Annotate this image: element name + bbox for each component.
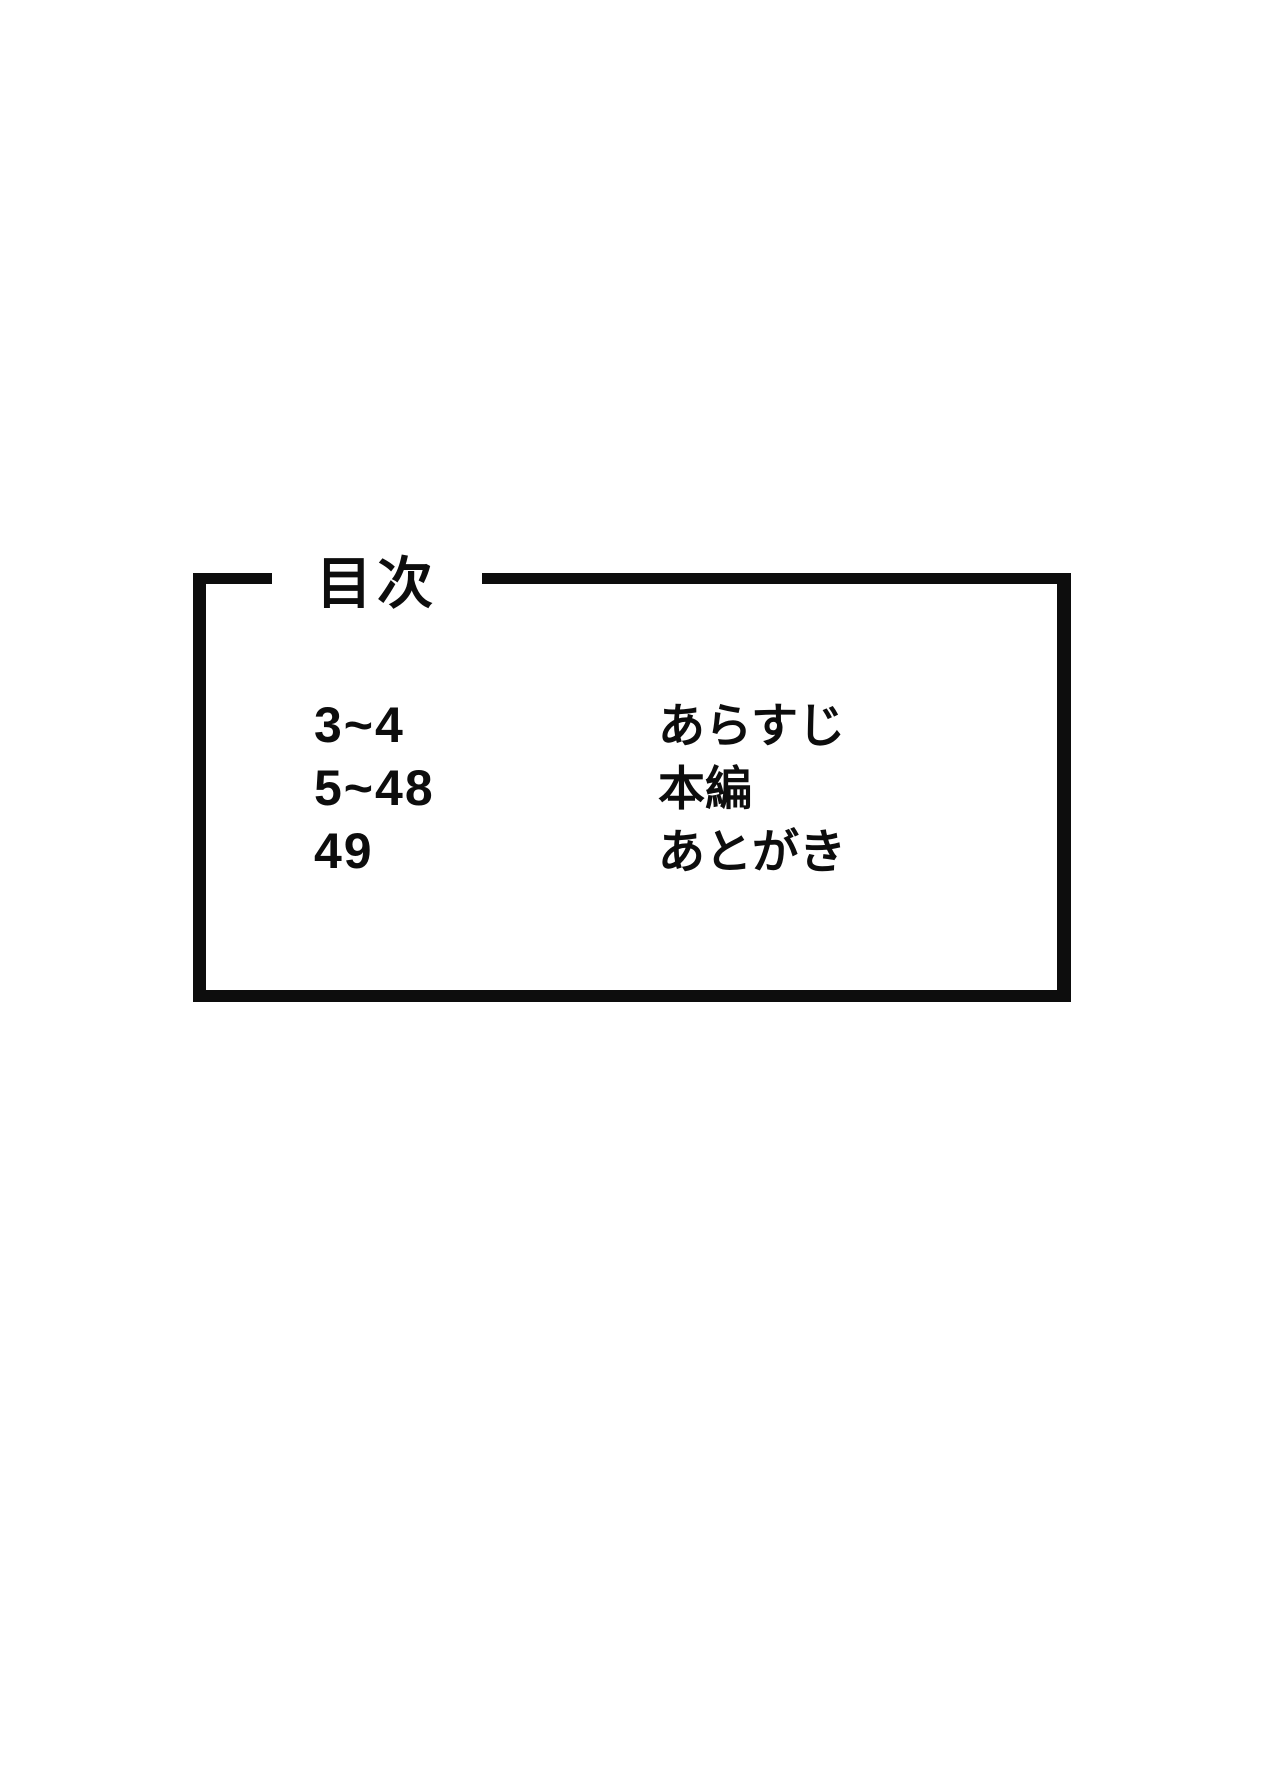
toc-row: 3~4 あらすじ xyxy=(314,700,1034,763)
page-range: 3~4 xyxy=(314,700,658,750)
section-label: 本編 xyxy=(658,765,752,812)
section-label: あとがき xyxy=(658,828,846,875)
box-border-right xyxy=(1057,573,1071,1002)
page-range: 5~48 xyxy=(314,763,658,813)
page-range: 49 xyxy=(314,826,658,876)
toc-title: 目次 xyxy=(316,556,438,612)
box-border-bottom xyxy=(193,990,1071,1002)
section-label: あらすじ xyxy=(658,702,845,749)
toc-page: 目次 3~4 あらすじ 5~48 本編 49 あとがき xyxy=(0,0,1280,1780)
toc-row: 5~48 本編 xyxy=(314,763,1034,826)
box-border-left xyxy=(193,573,206,1002)
toc-box: 目次 3~4 あらすじ 5~48 本編 49 あとがき xyxy=(193,573,1071,1002)
toc-row: 49 あとがき xyxy=(314,826,1034,889)
toc-rows: 3~4 あらすじ 5~48 本編 49 あとがき xyxy=(314,700,1034,889)
box-border-top-right-segment xyxy=(482,573,1071,584)
